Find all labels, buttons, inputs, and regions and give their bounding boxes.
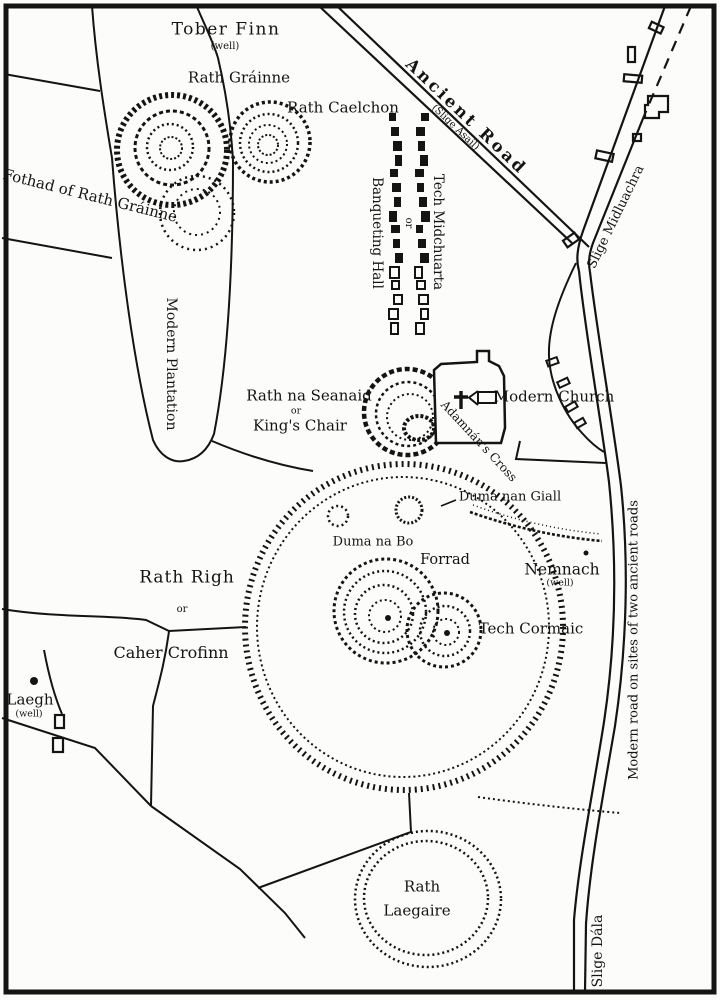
label-tech-midchuarta: Tech Midchuarta [430,174,444,290]
label-nemnach-note: (well) [546,578,573,588]
field-line [258,793,411,888]
label-nemnach: Nemnach [524,562,599,578]
forrad-rings [334,559,438,663]
label-forrad: Forrad [420,553,470,568]
banqueting-hall-mark [417,281,425,289]
field-line [4,74,100,91]
label-kings-chair: King's Chair [253,419,347,434]
banqueting-hall-mark [416,225,423,233]
label-tober-finn-note: (well) [211,42,240,52]
ring [355,831,501,967]
banqueting-hall-mark [418,239,426,248]
banqueting-hall-mark [392,281,399,289]
nemnach-well-dot [584,551,589,556]
banqueting-hall-mark [419,197,427,207]
banqueting-hall-mark [390,267,399,278]
field-line [151,806,305,938]
label-tech-cormaic: Tech Cormaic [479,622,584,637]
banqueting-hall-mark [395,253,403,263]
banqueting-hall-mark [391,323,398,334]
duma-nan-giall-mound [396,497,422,523]
label-laegh-note: (well) [15,709,42,719]
label-rath-na-seanaid: Rath na Seanaid [246,389,372,404]
field-line [212,441,313,471]
l-shaped-building [645,96,668,118]
banqueting-hall-mark [415,267,422,278]
tech-cormaic-rings [407,593,481,667]
hill-of-tara-map: Tober Finn (well) Rath Gráinne Rath Cael… [0,0,720,1000]
duma-na-bo-mound [328,506,348,526]
banqueting-hall-mark [394,295,402,304]
rath-laegaire-rings [355,831,501,967]
label-rath-na-seanaid-or: or [291,406,301,416]
label-rath-righ: Rath Righ [139,570,235,587]
banqueting-hall-mark [395,155,402,166]
banqueting-hall-mark [421,309,428,319]
rath-grainne-rings [117,95,227,205]
label-duma-na-bo: Duma na Bo [333,536,414,549]
label-rath-laegaire-2: Laegaire [383,904,450,919]
ring [147,124,193,170]
banqueting-hall-mark [389,309,398,319]
building [53,738,63,752]
dotted-line [478,797,620,813]
building [563,233,579,248]
banqueting-hall-mark [421,211,430,222]
modern-road-east-line [585,272,626,992]
banqueting-hall-mark [393,239,400,248]
ring [334,559,438,663]
banqueting-hall-mark [416,323,424,334]
building [55,715,64,728]
banqueting-hall-mark [390,169,398,177]
banqueting-hall-mark [415,169,424,177]
banqueting-hall-mark [420,253,429,263]
dotted-line [473,505,601,534]
field-line [2,718,151,806]
banqueting-hall-mark [421,113,429,121]
map-drawing [0,0,720,1000]
banqueting-hall-mark [419,295,428,304]
center-dot [444,630,450,636]
ring [174,189,220,235]
banqueting-hall-mark [394,197,401,207]
building [628,47,635,62]
label-tober-finn: Tober Finn [172,22,281,39]
banqueting-hall-mark [392,183,401,192]
label-rath-grainne: Rath Gráinne [188,71,290,86]
laegh-well-dot [30,677,38,685]
field-line [2,609,246,631]
banqueting-hall-mark [393,141,402,151]
ring [355,585,413,643]
ring [258,135,278,155]
banqueting-hall-mark [391,127,399,136]
banqueting-hall-mark [417,183,424,192]
ring [344,571,426,653]
label-rath-caelchon: Rath Caelchon [287,101,399,116]
label-rath-righ-or: or [177,605,188,615]
label-modern-plantation: Modern Plantation [164,298,178,431]
banqueting-hall-mark [418,141,425,151]
banqueting-hall-mark [389,211,397,222]
label-modern-church: Modern Church [494,390,615,405]
field-line [2,238,112,258]
label-laegh: Laegh [6,693,53,708]
label-banqueting-or: or [403,218,413,229]
building [574,418,586,428]
label-duma-nan-giall: Duma nan Giall [459,491,561,504]
banqueting-hall-mark [416,127,425,136]
banqueting-hall-mark [391,225,400,233]
hachured-line [470,512,602,541]
label-slige-dala: Slige Dála [591,915,605,988]
building [557,378,570,388]
ring [249,125,287,163]
label-banqueting-hall: Banqueting Hall [369,177,383,289]
ring [117,95,227,205]
ring [369,600,401,632]
ring [160,137,182,159]
label-rath-laegaire-1: Rath [404,880,440,895]
duma-mounds [328,497,422,526]
ring [364,841,488,955]
banqueting-hall-mark [420,155,428,166]
duma-nan-giall-leader [441,500,456,506]
slige-midluachra-west-line [577,6,665,271]
label-modern-road: Modern road on sites of two ancient road… [628,500,641,780]
label-caher-crofinn: Caher Crofinn [113,645,228,661]
center-dot [385,615,391,621]
